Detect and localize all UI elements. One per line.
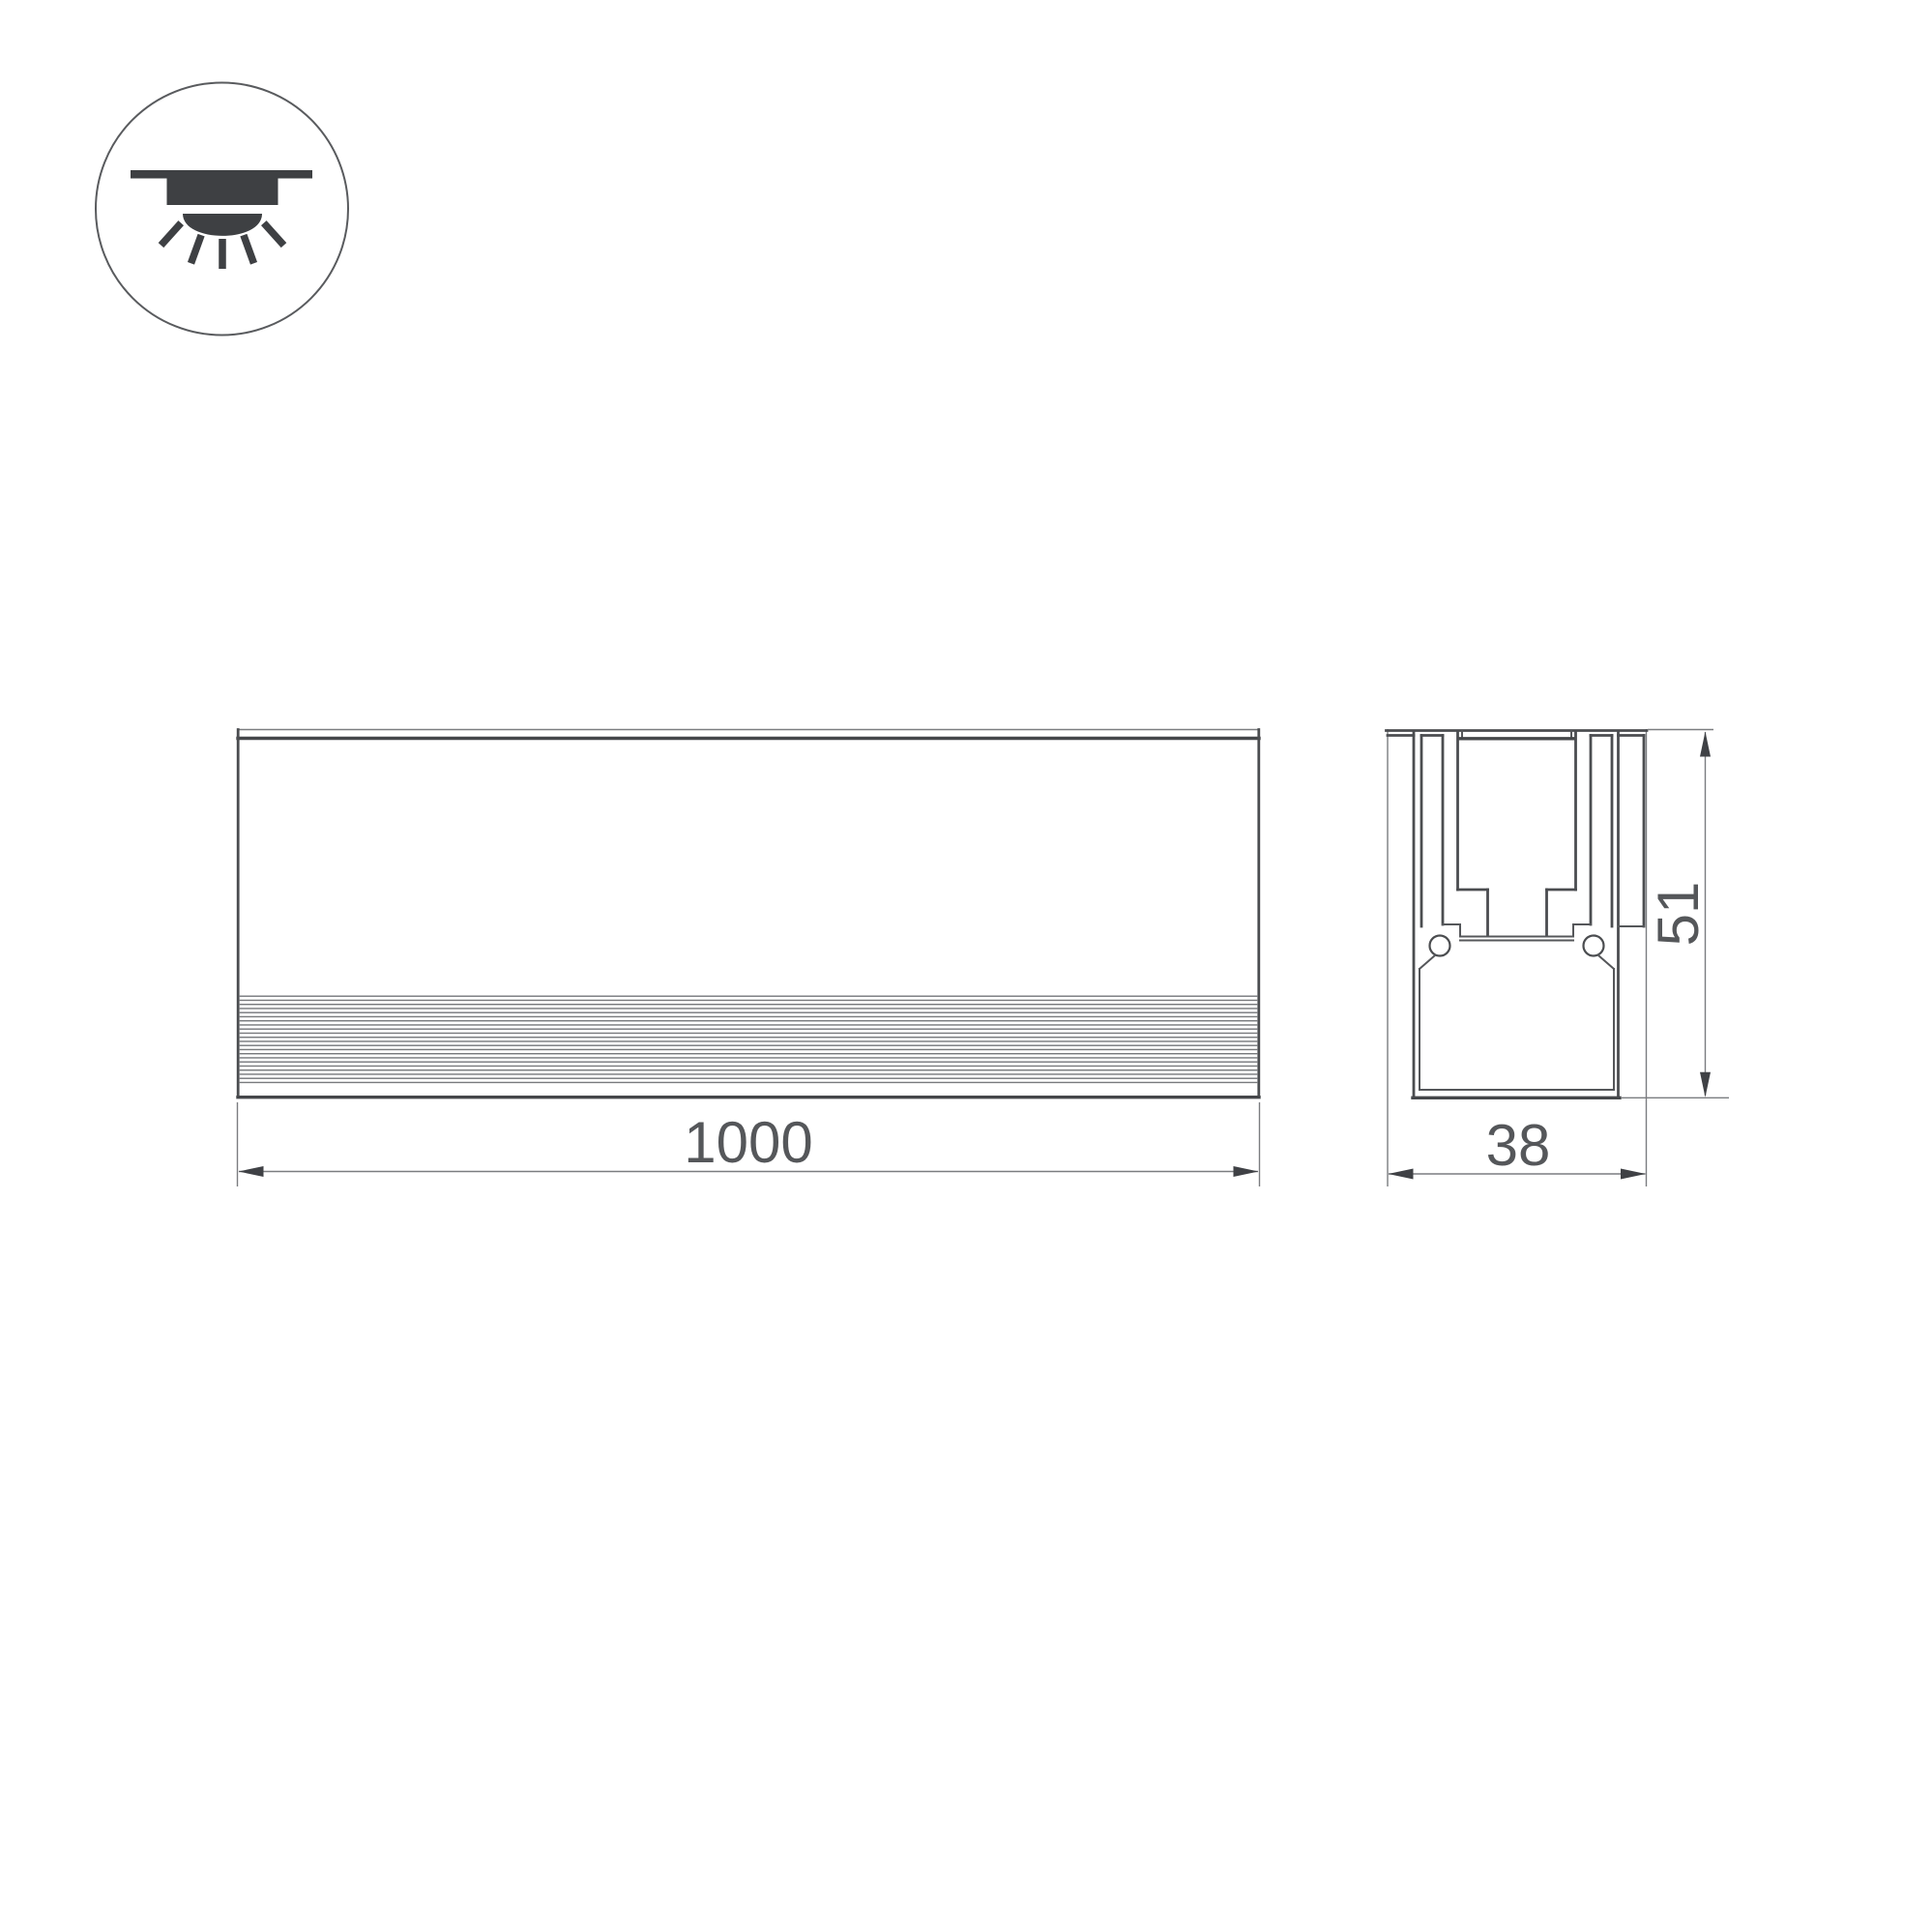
length-dimension-label: 1000 xyxy=(684,1110,812,1175)
height-arrow-top xyxy=(1700,732,1711,757)
front-view-ribbed-diffuser xyxy=(239,996,1258,1085)
height-arrow-bottom xyxy=(1700,1072,1711,1098)
width-arrow-right xyxy=(1621,1169,1646,1180)
width-dimension-label: 38 xyxy=(1486,1113,1551,1178)
technical-drawing: 1000 xyxy=(0,0,1932,1932)
section-clip-curl-left xyxy=(1430,936,1450,956)
height-dimension-label: 51 xyxy=(1646,882,1711,947)
recessed-downlight-icon xyxy=(96,83,348,336)
icon-recessed-housing xyxy=(167,170,278,205)
section-base-upstands xyxy=(1460,924,1573,937)
icon-circle-border xyxy=(96,83,348,336)
section-clip-curl-right xyxy=(1584,936,1604,956)
drawing-sheet: 1000 xyxy=(0,0,1932,1932)
section-body-chamfer-right xyxy=(1598,955,1614,969)
width-arrow-left xyxy=(1389,1169,1414,1180)
length-dimension: 1000 xyxy=(238,1102,1260,1186)
length-arrow-right xyxy=(1234,1166,1259,1177)
profile-front-view xyxy=(237,730,1260,1098)
length-arrow-left xyxy=(239,1166,264,1177)
width-dimension: 38 xyxy=(1389,1113,1647,1180)
height-dimension: 51 xyxy=(1622,730,1729,1098)
section-body-chamfer-left xyxy=(1420,955,1435,969)
